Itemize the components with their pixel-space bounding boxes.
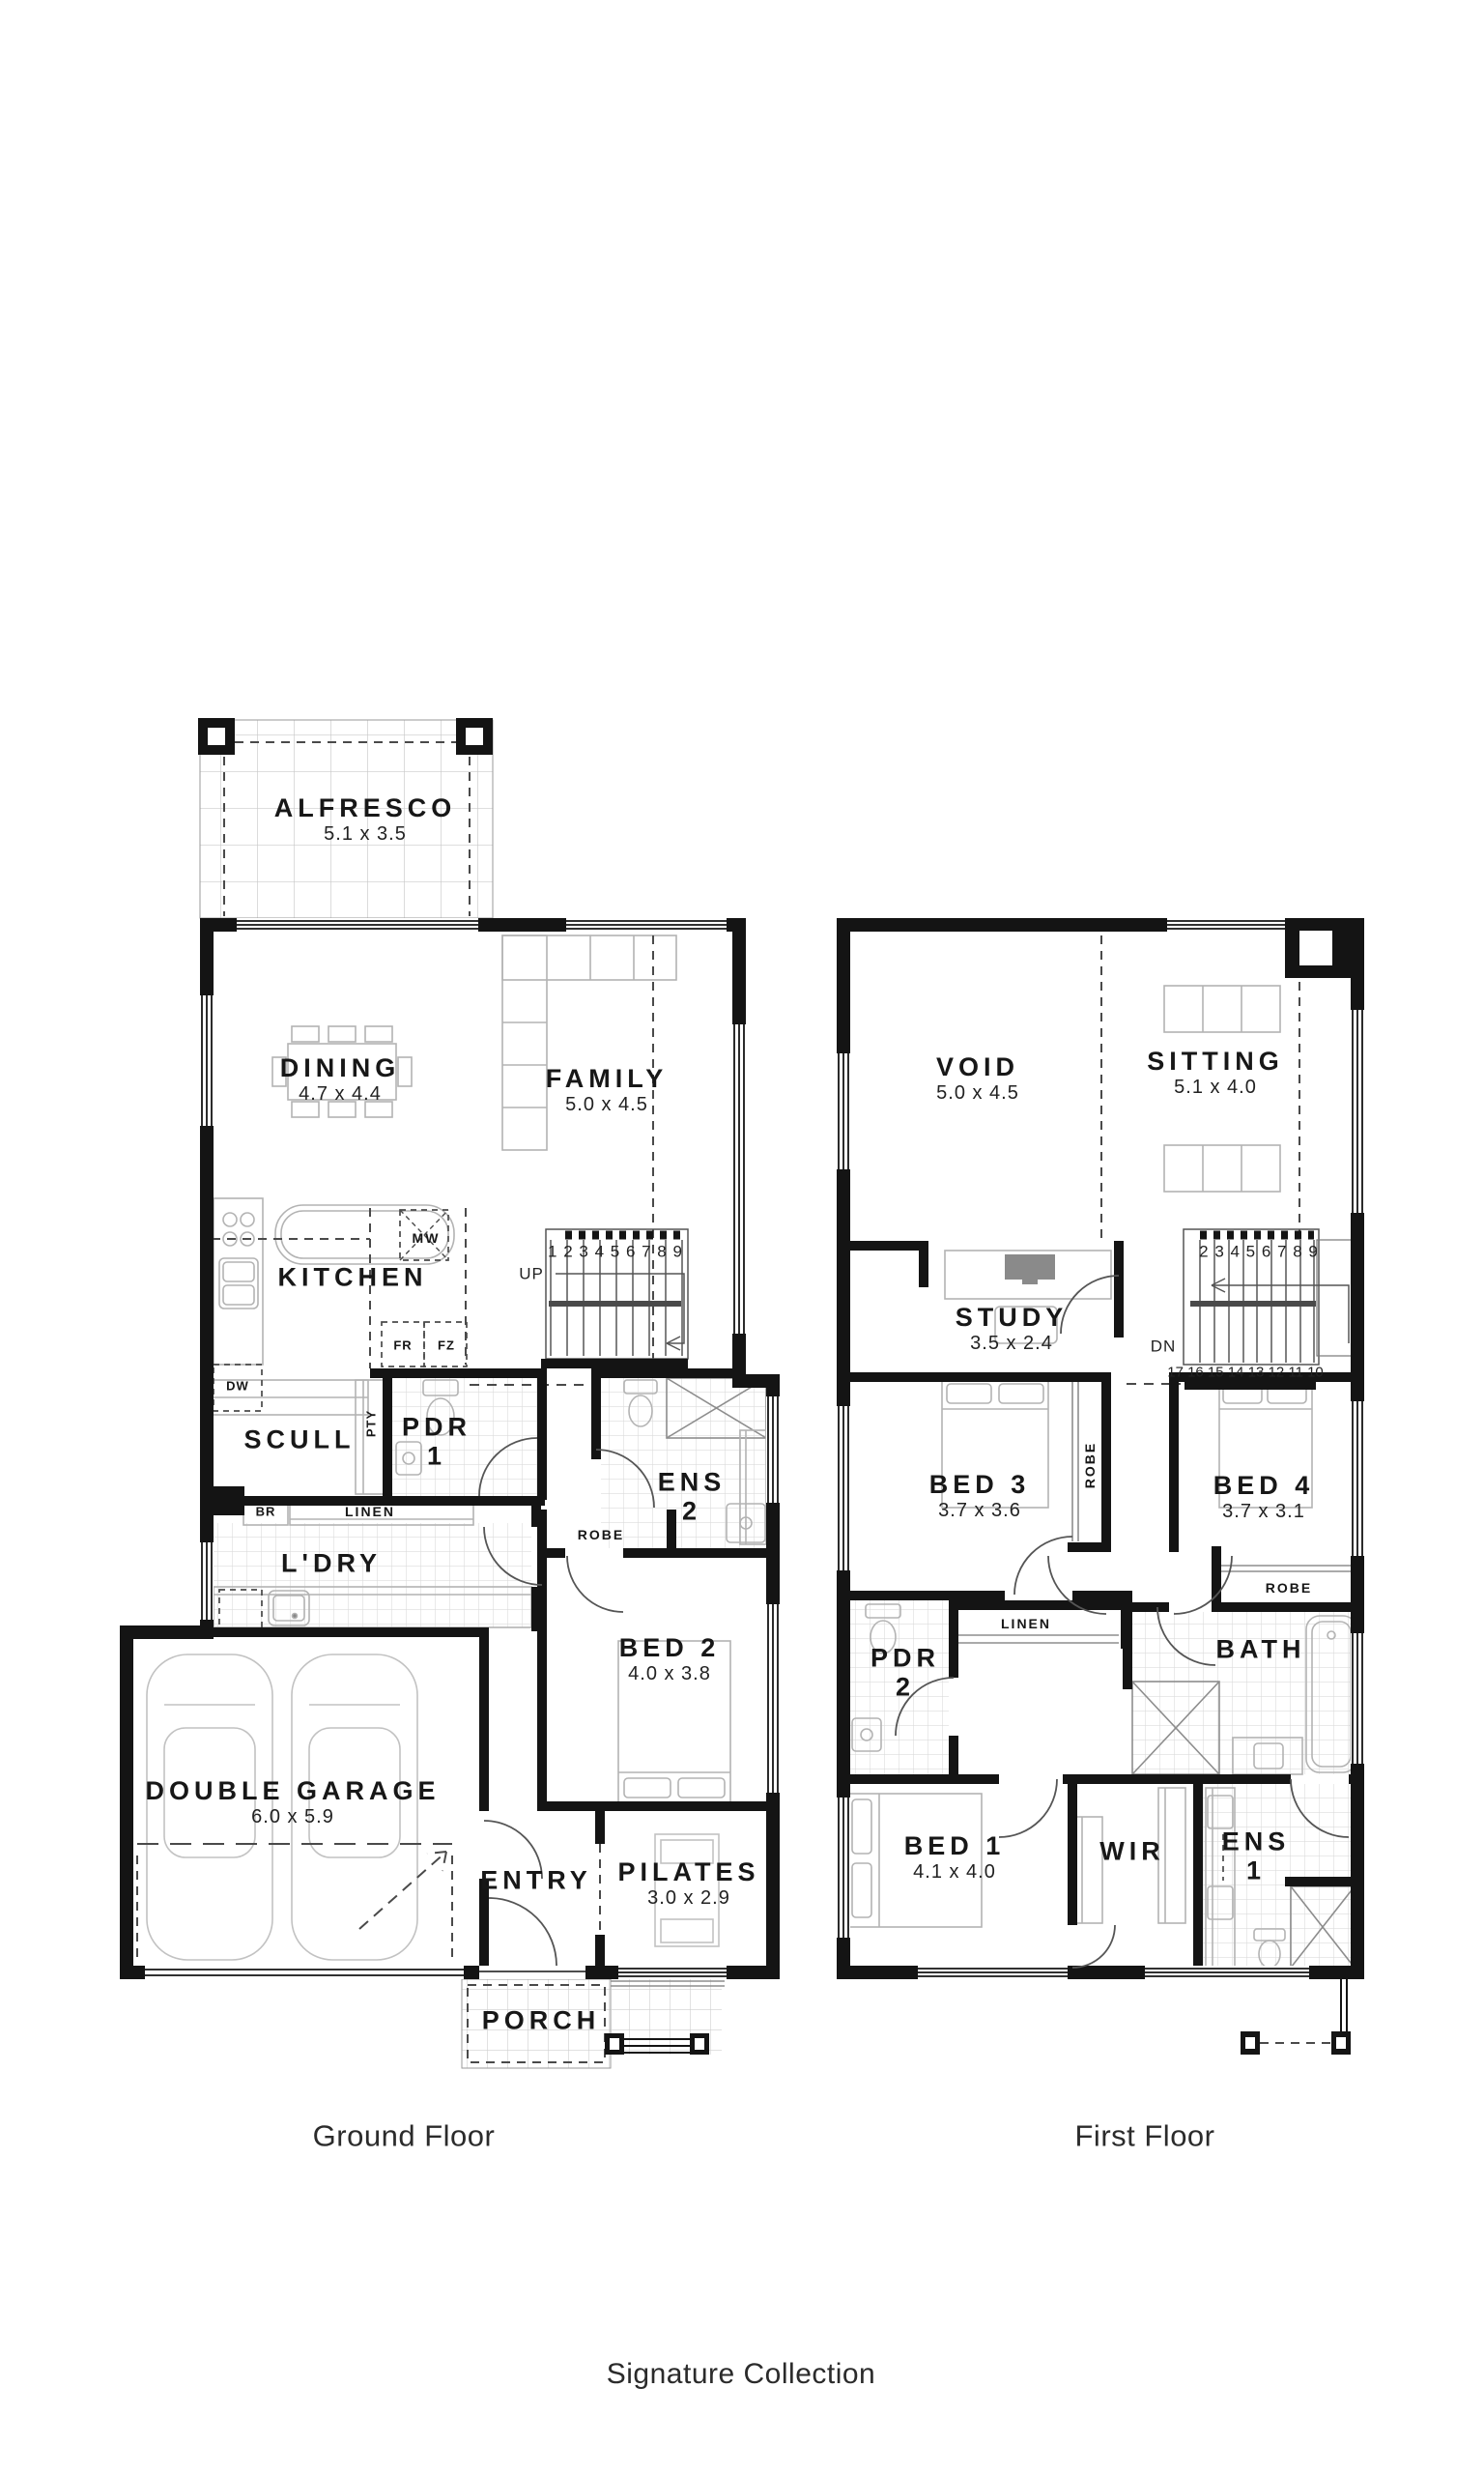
- fixture-label-robe-bed3: ROBE: [1083, 1442, 1097, 1488]
- room-label-void: VOID 5.0 x 4.5: [936, 1054, 1019, 1103]
- room-label-bed4: BED 4 3.7 x 3.1: [1213, 1473, 1315, 1521]
- room-label-porch: PORCH: [482, 2008, 601, 2034]
- room-dims-bed3: 3.7 x 3.6: [938, 1501, 1021, 1520]
- room-dims-void: 5.0 x 4.5: [936, 1083, 1019, 1103]
- room-number-pdr2: 2: [896, 1675, 915, 1701]
- room-number-ens2: 2: [682, 1499, 701, 1525]
- room-label-family: FAMILY 5.0 x 4.5: [546, 1066, 669, 1114]
- stairs-up-label: UP: [519, 1266, 544, 1282]
- room-name-study: STUDY: [956, 1305, 1069, 1331]
- room-label-bed2: BED 2 4.0 x 3.8: [619, 1635, 721, 1683]
- room-label-pdr2: PDR 2: [870, 1646, 940, 1701]
- room-label-ens1: ENS 1: [1222, 1829, 1291, 1884]
- room-name-ens1: ENS: [1222, 1829, 1291, 1855]
- room-label-kitchen: KITCHEN: [278, 1265, 428, 1291]
- room-label-alfresco: ALFRESCO 5.1 x 3.5: [274, 795, 457, 844]
- room-dims-bed1: 4.1 x 4.0: [913, 1862, 996, 1882]
- room-label-bed3: BED 3 3.7 x 3.6: [929, 1472, 1031, 1520]
- room-label-entry: ENTRY: [480, 1868, 592, 1894]
- room-name-entry: ENTRY: [480, 1868, 592, 1894]
- room-name-bed1: BED 1: [904, 1833, 1006, 1859]
- room-label-wir: WIR: [1099, 1839, 1164, 1865]
- room-label-bed1: BED 1 4.1 x 4.0: [904, 1833, 1006, 1882]
- collection-title: Signature Collection: [607, 2360, 876, 2389]
- stairs-dn-label: DN: [1151, 1338, 1177, 1355]
- room-label-bath: BATH: [1216, 1637, 1306, 1663]
- floorplan-page: ALFRESCO 5.1 x 3.5 DINING 4.7 x 4.4 FAMI…: [0, 0, 1484, 2474]
- room-label-scull: SCULL: [244, 1427, 356, 1453]
- room-label-laundry: L'DRY: [281, 1551, 382, 1577]
- stairs-tread-numbers-first-lower: 17 16 15 14 13 12 11 10: [1167, 1366, 1324, 1380]
- room-name-scull: SCULL: [244, 1427, 356, 1453]
- room-name-sitting: SITTING: [1147, 1049, 1284, 1075]
- room-name-void: VOID: [936, 1054, 1019, 1080]
- room-label-ens2: ENS 2: [658, 1470, 727, 1525]
- room-dims-family: 5.0 x 4.5: [565, 1095, 648, 1114]
- room-label-double-garage: DOUBLE GARAGE 6.0 x 5.9: [145, 1778, 440, 1827]
- room-dims-sitting: 5.1 x 4.0: [1174, 1078, 1257, 1097]
- room-name-alfresco: ALFRESCO: [274, 795, 457, 821]
- room-name-porch: PORCH: [482, 2008, 601, 2034]
- room-name-pilates: PILATES: [617, 1859, 759, 1885]
- fixture-label-fridge: FR: [393, 1339, 412, 1352]
- room-name-pdr1: PDR: [402, 1415, 471, 1441]
- fixture-label-pantry: PTY: [365, 1410, 378, 1437]
- stairs-tread-numbers-first-upper: 2 3 4 5 6 7 8 9: [1199, 1244, 1319, 1260]
- room-name-bed3: BED 3: [929, 1472, 1031, 1498]
- room-dims-bed4: 3.7 x 3.1: [1222, 1502, 1305, 1521]
- room-dims-alfresco: 5.1 x 3.5: [324, 824, 407, 844]
- room-dims-dining: 4.7 x 4.4: [299, 1084, 382, 1104]
- room-number-pdr1: 1: [427, 1444, 446, 1470]
- room-dims-bed2: 4.0 x 3.8: [628, 1664, 711, 1683]
- fixture-label-broom: BR: [256, 1506, 276, 1518]
- ground-floor-caption: Ground Floor: [313, 2121, 496, 2151]
- room-name-pdr2: PDR: [870, 1646, 940, 1672]
- room-name-kitchen: KITCHEN: [278, 1265, 428, 1291]
- room-dims-pilates: 3.0 x 2.9: [647, 1888, 730, 1908]
- room-label-pdr1: PDR 1: [402, 1415, 471, 1470]
- room-name-family: FAMILY: [546, 1066, 669, 1092]
- stairs-tread-numbers-ground: 1 2 3 4 5 6 7 8 9: [548, 1244, 683, 1260]
- fixture-label-linen-ground: LINEN: [345, 1505, 395, 1518]
- room-dims-double-garage: 6.0 x 5.9: [251, 1807, 334, 1827]
- room-label-study: STUDY 3.5 x 2.4: [956, 1305, 1069, 1353]
- room-number-ens1: 1: [1246, 1858, 1266, 1884]
- room-name-double-garage: DOUBLE GARAGE: [145, 1778, 440, 1804]
- fixture-label-microwave: MW: [413, 1231, 441, 1245]
- first-floor-caption: First Floor: [1075, 2121, 1215, 2151]
- room-name-ens2: ENS: [658, 1470, 727, 1496]
- room-label-dining: DINING 4.7 x 4.4: [280, 1055, 401, 1104]
- room-label-sitting: SITTING 5.1 x 4.0: [1147, 1049, 1284, 1097]
- room-name-laundry: L'DRY: [281, 1551, 382, 1577]
- room-dims-study: 3.5 x 2.4: [970, 1334, 1053, 1353]
- floorplan-drawing: [0, 0, 1484, 2474]
- fixture-label-robe-bed4: ROBE: [1266, 1581, 1312, 1595]
- fixture-label-dishwasher: DW: [226, 1380, 249, 1393]
- room-name-dining: DINING: [280, 1055, 401, 1081]
- fixture-label-linen-first: LINEN: [1001, 1617, 1051, 1630]
- fixture-label-freezer: FZ: [438, 1339, 455, 1352]
- room-name-bed4: BED 4: [1213, 1473, 1315, 1499]
- room-name-bath: BATH: [1216, 1637, 1306, 1663]
- room-label-pilates: PILATES 3.0 x 2.9: [617, 1859, 759, 1908]
- room-name-wir: WIR: [1099, 1839, 1164, 1865]
- fixture-label-robe-ground: ROBE: [578, 1528, 624, 1541]
- room-name-bed2: BED 2: [619, 1635, 721, 1661]
